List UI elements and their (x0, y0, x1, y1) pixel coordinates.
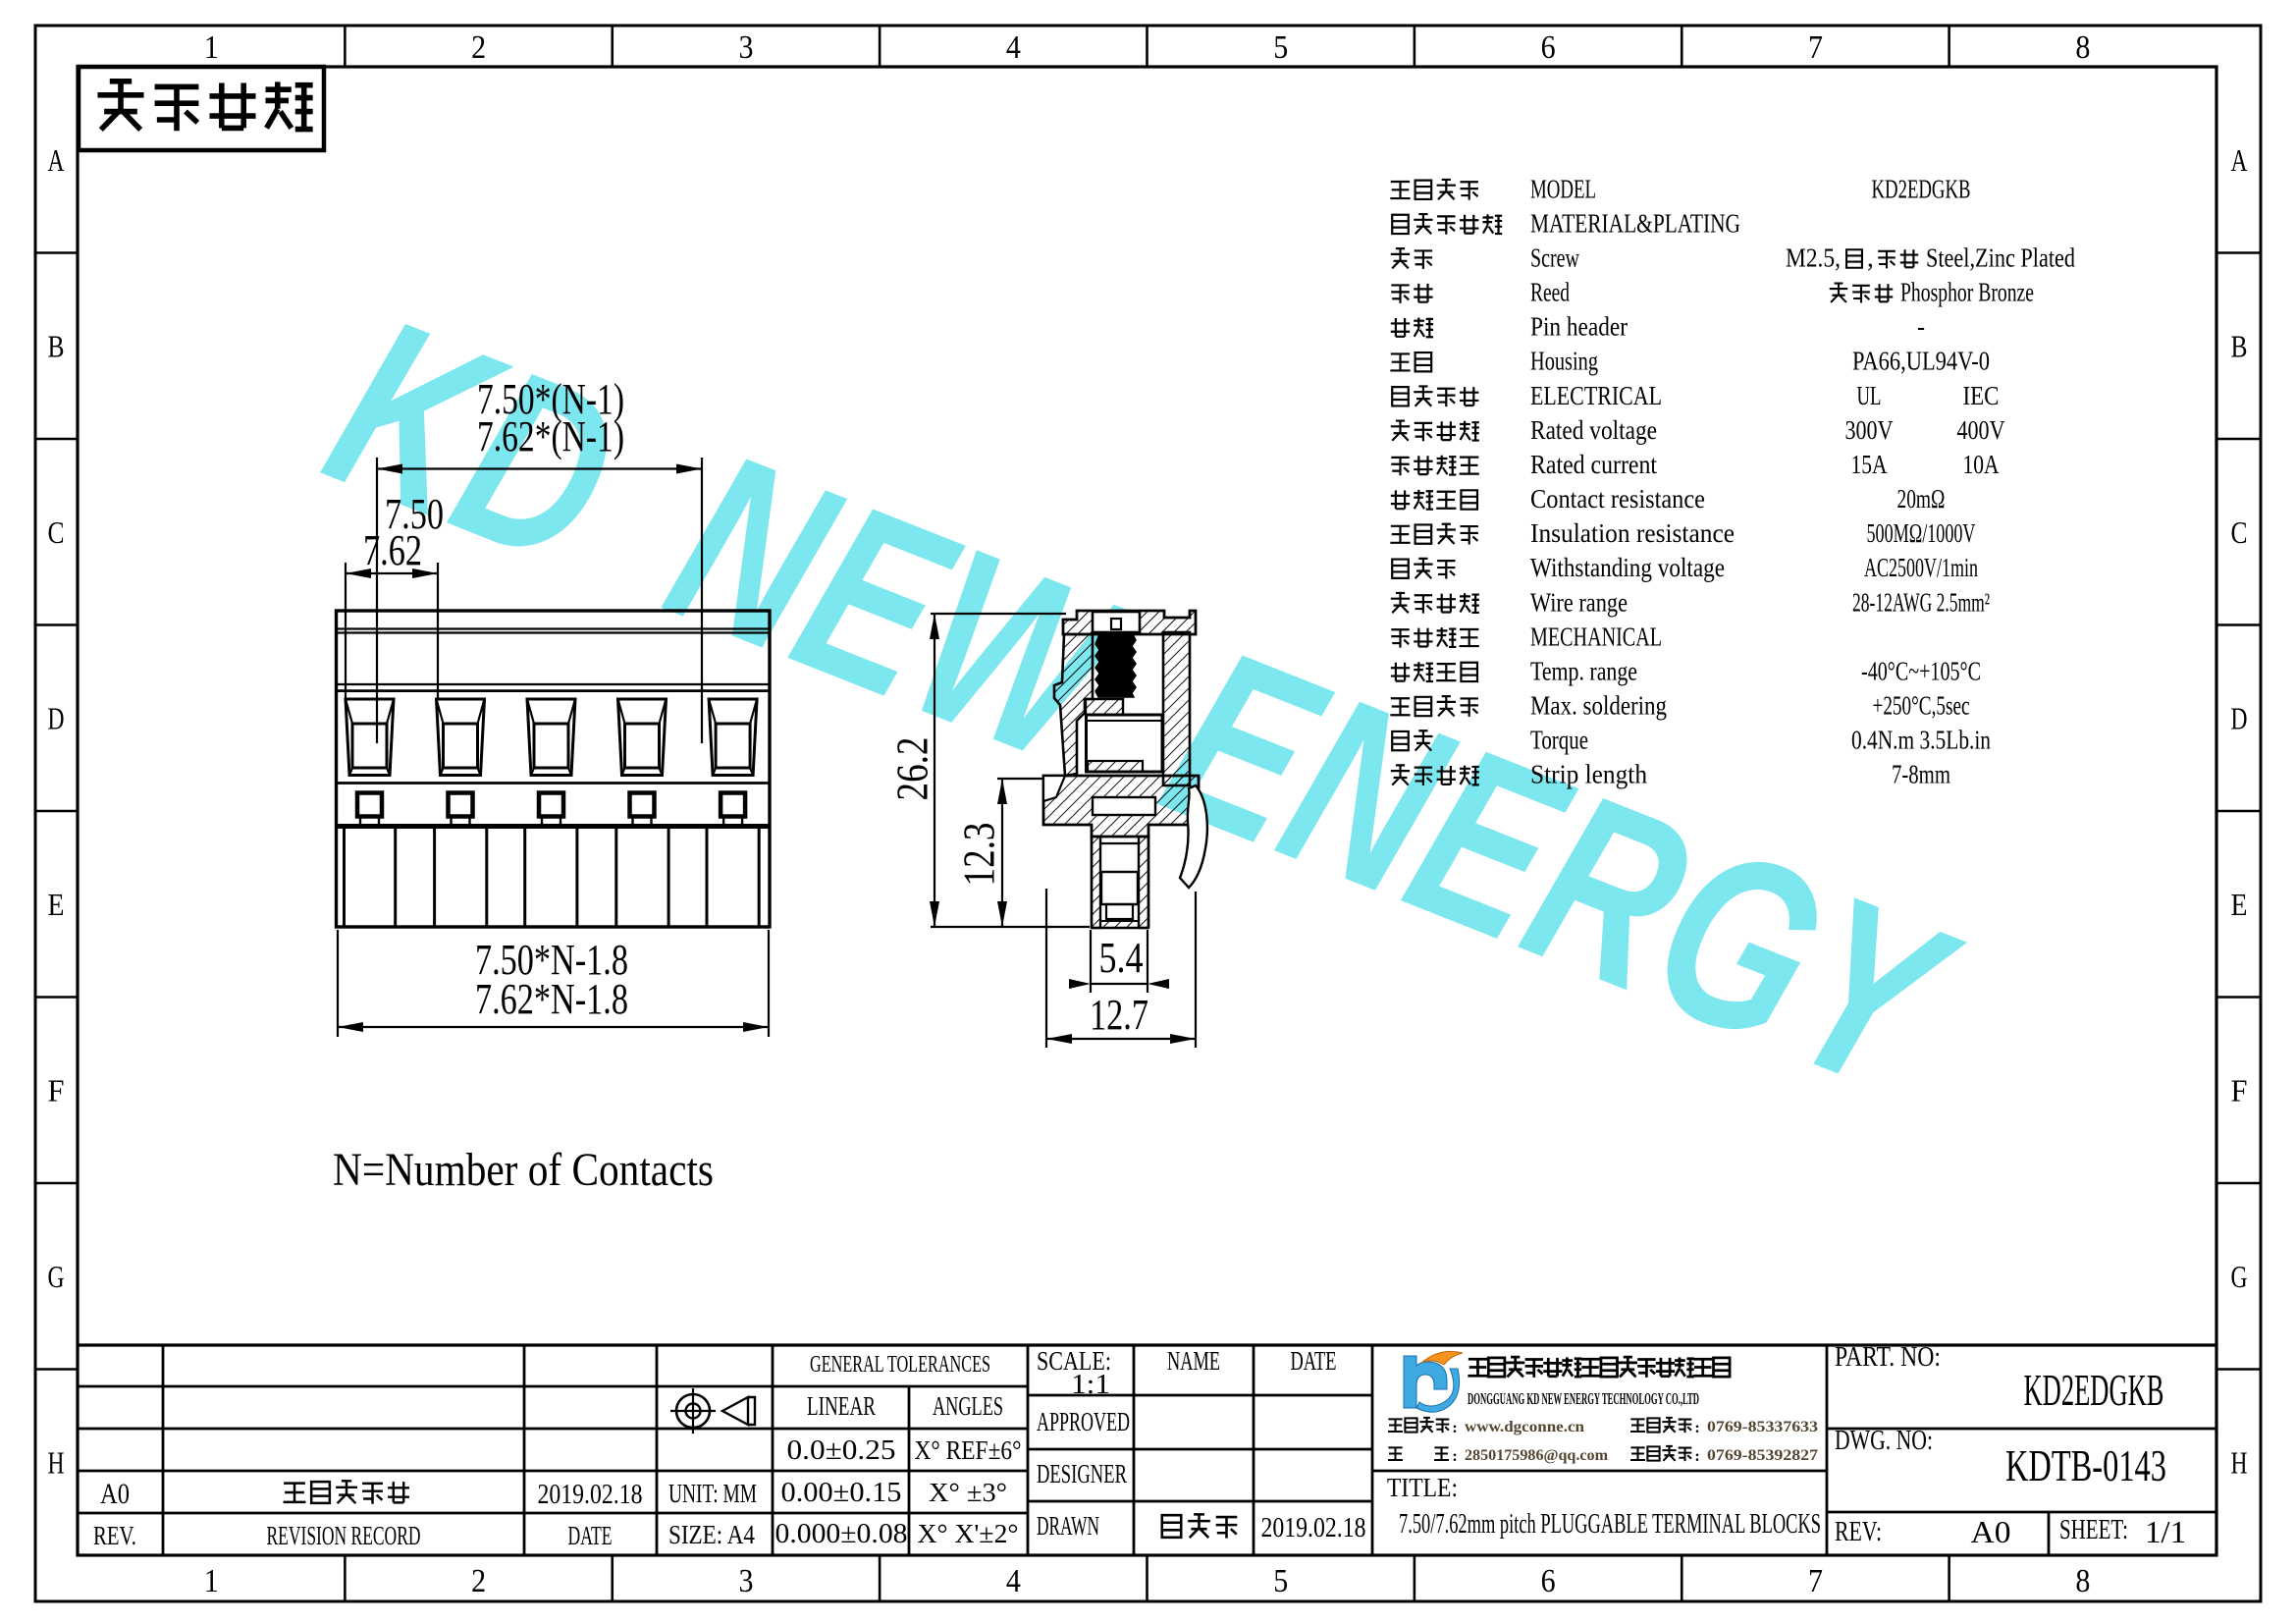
svg-text:5.4: 5.4 (1099, 934, 1144, 982)
svg-text::: : (1694, 1420, 1699, 1436)
svg-text:7.62*N-1.8: 7.62*N-1.8 (475, 975, 628, 1023)
svg-text:0.0±0.25: 0.0±0.25 (787, 1435, 896, 1466)
svg-text:Pin header: Pin header (1530, 312, 1628, 342)
svg-text:C: C (2231, 514, 2248, 550)
svg-text:4: 4 (1006, 29, 1021, 66)
svg-text:Strip length: Strip length (1530, 760, 1647, 789)
svg-text:1: 1 (204, 29, 219, 66)
svg-text:PART. NO:: PART. NO: (1835, 1342, 1941, 1373)
svg-text:KD2EDGKB: KD2EDGKB (2024, 1365, 2164, 1415)
svg-text:-40°C~+105°C: -40°C~+105°C (1861, 656, 1981, 685)
svg-text:1:1: 1:1 (1071, 1370, 1110, 1400)
svg-text:DRAWN: DRAWN (1037, 1511, 1099, 1541)
svg-text:Steel,Zinc Plated: Steel,Zinc Plated (1926, 243, 2075, 272)
svg-text:PA66,UL94V-0: PA66,UL94V-0 (1852, 347, 1990, 376)
svg-text:A: A (48, 142, 65, 178)
svg-text:KDTB-0143: KDTB-0143 (2005, 1440, 2166, 1490)
svg-text:2019.02.18: 2019.02.18 (1261, 1513, 1366, 1543)
svg-text:SHEET:: SHEET: (2059, 1515, 2128, 1545)
svg-text:ELECTRICAL: ELECTRICAL (1530, 381, 1662, 410)
svg-text:3: 3 (738, 29, 753, 66)
svg-text:2: 2 (471, 29, 486, 66)
svg-text:500MΩ/1000V: 500MΩ/1000V (1867, 518, 1976, 548)
svg-text:0.000±0.08: 0.000±0.08 (775, 1519, 908, 1549)
svg-text:,: , (1867, 243, 1874, 272)
svg-text:Insulation resistance: Insulation resistance (1530, 518, 1735, 548)
svg-text:7-8mm: 7-8mm (1892, 760, 1950, 789)
svg-text:6: 6 (1541, 1563, 1556, 1599)
svg-text:8: 8 (2075, 1563, 2090, 1599)
svg-text:Housing: Housing (1530, 347, 1598, 376)
svg-text:Wire range: Wire range (1530, 587, 1628, 617)
svg-text:10A: 10A (1963, 450, 2000, 479)
svg-text:3: 3 (738, 1563, 753, 1599)
svg-text:MODEL: MODEL (1530, 174, 1596, 203)
svg-text:2: 2 (471, 1563, 486, 1599)
svg-text:Rated current: Rated current (1530, 450, 1657, 479)
svg-text:5: 5 (1273, 1563, 1288, 1599)
svg-text:Torque: Torque (1530, 726, 1588, 755)
svg-text:2850175986@qq.com: 2850175986@qq.com (1465, 1447, 1609, 1464)
svg-text:300V: 300V (1845, 415, 1894, 445)
svg-text:N=Number of Contacts: N=Number of Contacts (333, 1144, 714, 1196)
svg-text:DATE: DATE (568, 1521, 613, 1550)
svg-text:APPROVED: APPROVED (1037, 1407, 1130, 1436)
svg-text:LINEAR: LINEAR (807, 1391, 876, 1421)
svg-text:REVISION RECORD: REVISION RECORD (267, 1521, 421, 1550)
svg-text:G: G (48, 1259, 65, 1294)
svg-text:A0: A0 (100, 1478, 130, 1510)
svg-text::: : (1452, 1448, 1457, 1465)
svg-text:E: E (48, 887, 65, 922)
svg-text:2019.02.18: 2019.02.18 (538, 1479, 643, 1510)
svg-text:20mΩ: 20mΩ (1897, 484, 1946, 514)
svg-text:M2.5,: M2.5, (1786, 243, 1841, 272)
svg-text:MECHANICAL: MECHANICAL (1530, 622, 1662, 651)
svg-text:0.00±0.15: 0.00±0.15 (781, 1478, 902, 1508)
svg-text:7: 7 (1808, 1563, 1823, 1599)
svg-text:0769-85337633: 0769-85337633 (1707, 1419, 1818, 1435)
svg-text:www.dgconne.cn: www.dgconne.cn (1465, 1419, 1584, 1435)
svg-text:DONGGUANG KD NEW ENERGY TECHNO: DONGGUANG KD NEW ENERGY TECHNOLOGY CO.,L… (1468, 1389, 1699, 1408)
svg-text:B: B (48, 328, 65, 363)
svg-text:D: D (48, 700, 65, 735)
svg-text:KD2EDGKB: KD2EDGKB (1872, 174, 1971, 203)
svg-text:A: A (2231, 142, 2248, 178)
svg-text:0.4N.m 3.5Lb.in: 0.4N.m 3.5Lb.in (1851, 726, 1991, 755)
svg-text:C: C (48, 514, 65, 550)
svg-text:B: B (2231, 328, 2248, 363)
svg-text:5: 5 (1273, 29, 1288, 66)
svg-text:TITLE:: TITLE: (1387, 1473, 1458, 1502)
svg-text::: : (1452, 1420, 1457, 1436)
svg-text:1: 1 (204, 1563, 219, 1599)
svg-text:12.7: 12.7 (1090, 991, 1148, 1039)
svg-text:UL: UL (1857, 381, 1882, 410)
svg-text:D: D (2231, 700, 2248, 735)
svg-text:NAME: NAME (1167, 1346, 1220, 1376)
svg-text:Reed: Reed (1530, 278, 1570, 307)
svg-text:Phosphor Bronze: Phosphor Bronze (1900, 278, 2034, 307)
svg-text:Rated voltage: Rated voltage (1530, 415, 1657, 445)
svg-text:REV:: REV: (1835, 1517, 1882, 1547)
svg-text:7.50/7.62mm pitch PLUGGABLE TE: 7.50/7.62mm pitch PLUGGABLE TERMINAL BLO… (1399, 1509, 1821, 1540)
svg-text:SIZE: A4: SIZE: A4 (668, 1520, 755, 1549)
svg-text:Max. soldering: Max. soldering (1530, 691, 1667, 721)
svg-text:AC2500V/1min: AC2500V/1min (1864, 553, 1978, 582)
svg-text:ANGLES: ANGLES (933, 1391, 1003, 1421)
svg-text:400V: 400V (1957, 415, 2005, 445)
svg-text:DESIGNER: DESIGNER (1037, 1459, 1127, 1488)
svg-text:H: H (2231, 1444, 2248, 1480)
svg-text:REV.: REV. (93, 1521, 136, 1550)
svg-text:28-12AWG 2.5mm²: 28-12AWG 2.5mm² (1852, 587, 1990, 617)
svg-text:Temp. range: Temp. range (1530, 656, 1637, 685)
svg-text:12.3: 12.3 (954, 823, 1004, 887)
svg-text:1/1: 1/1 (2145, 1514, 2186, 1549)
svg-text:4: 4 (1006, 1563, 1021, 1599)
svg-text:Withstanding voltage: Withstanding voltage (1530, 553, 1725, 582)
svg-text:DWG. NO:: DWG. NO: (1835, 1426, 1933, 1456)
svg-text:X° X'±2°: X° X'±2° (918, 1519, 1019, 1548)
svg-text:6: 6 (1541, 29, 1556, 66)
svg-text:DATE: DATE (1291, 1346, 1337, 1376)
svg-text:H: H (48, 1444, 65, 1480)
svg-text:+250°C,5sec: +250°C,5sec (1873, 691, 1970, 721)
svg-text:MATERIAL&PLATING: MATERIAL&PLATING (1530, 208, 1740, 238)
svg-text:0769-85392827: 0769-85392827 (1707, 1447, 1818, 1464)
svg-text:UNIT: MM: UNIT: MM (668, 1479, 757, 1508)
svg-text:Screw: Screw (1530, 243, 1579, 272)
svg-text:Contact resistance: Contact resistance (1530, 484, 1705, 514)
svg-text:X° REF±6°: X° REF±6° (915, 1435, 1022, 1465)
svg-text:8: 8 (2075, 29, 2090, 66)
svg-text:F: F (2231, 1072, 2248, 1108)
svg-text:7: 7 (1808, 29, 1823, 66)
svg-text:F: F (48, 1072, 65, 1108)
svg-text:GENERAL TOLERANCES: GENERAL TOLERANCES (810, 1352, 990, 1378)
svg-text::: : (1694, 1448, 1699, 1465)
svg-text:X° ±3°: X° ±3° (929, 1478, 1007, 1507)
svg-text:26.2: 26.2 (887, 737, 937, 801)
svg-text:A0: A0 (1971, 1514, 2011, 1549)
svg-text:7.62*(N-1): 7.62*(N-1) (477, 412, 624, 460)
svg-text:G: G (2231, 1259, 2248, 1294)
svg-text:E: E (2231, 887, 2248, 922)
svg-text:15A: 15A (1851, 450, 1888, 479)
svg-text:-: - (1917, 312, 1925, 342)
svg-text:IEC: IEC (1963, 381, 2000, 410)
svg-text:7.62: 7.62 (363, 526, 422, 574)
